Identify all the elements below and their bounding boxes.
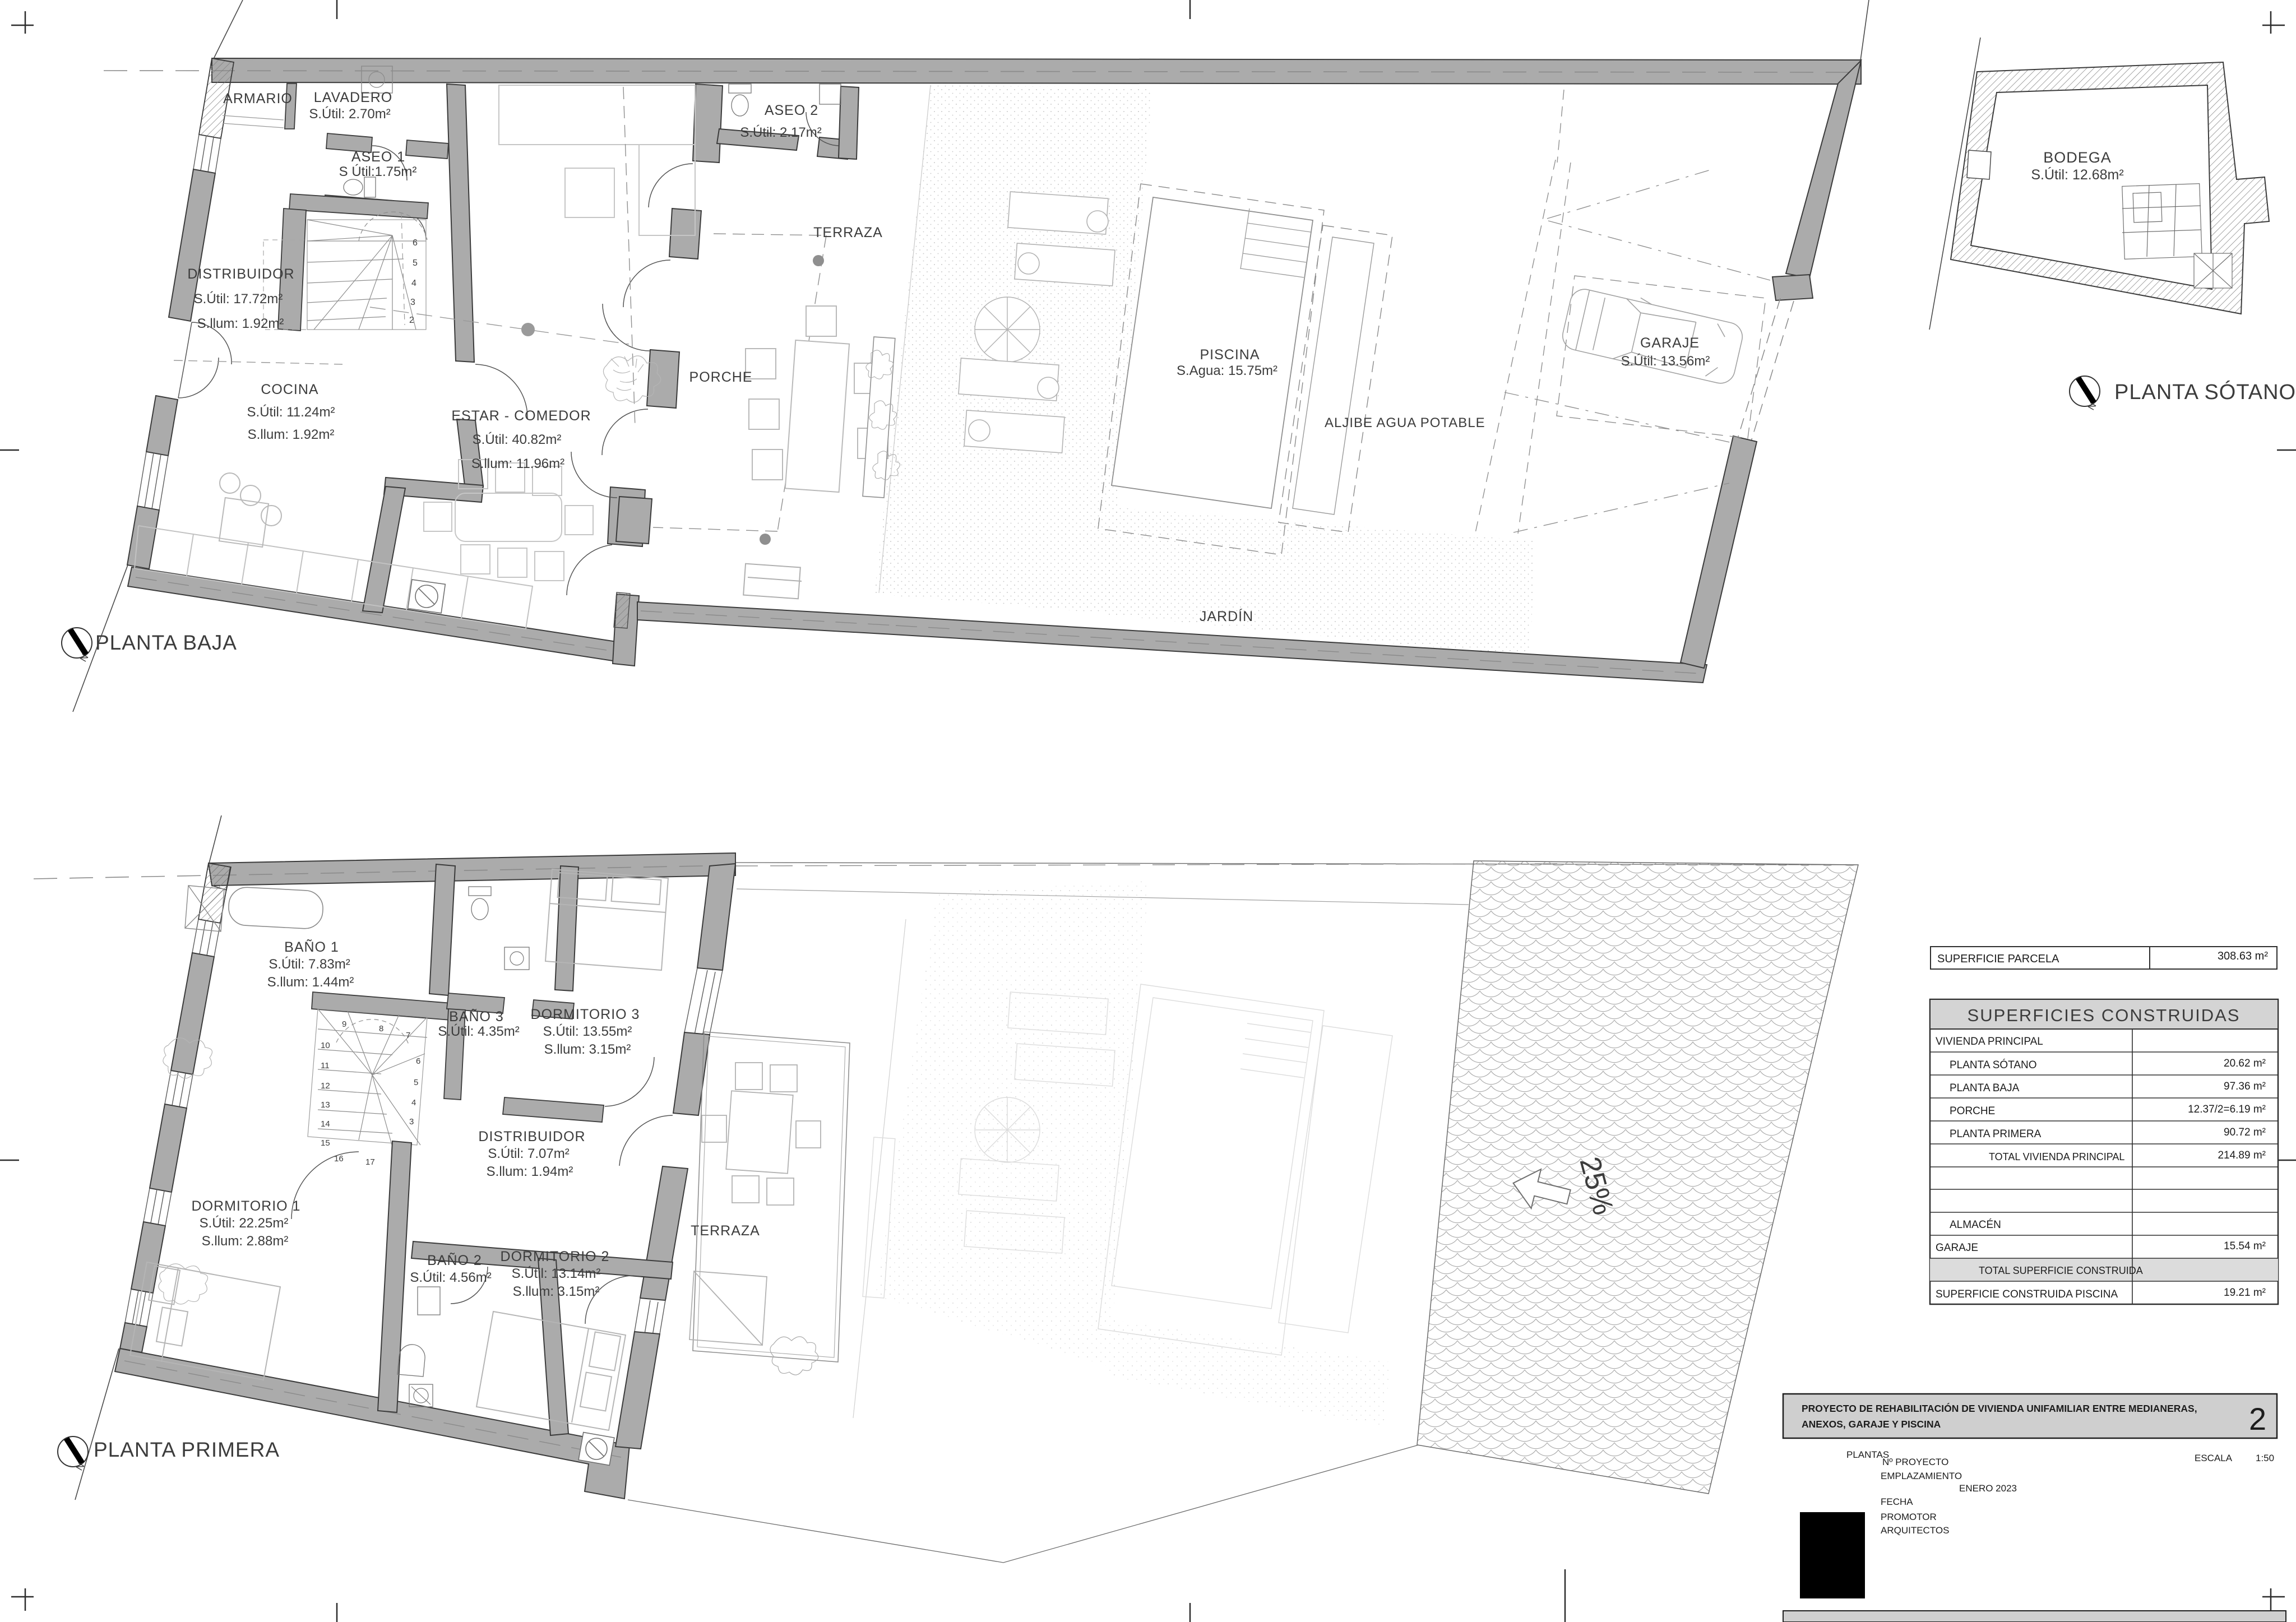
svg-text:2: 2	[2249, 1401, 2266, 1436]
svg-text:TERRAZA: TERRAZA	[691, 1223, 760, 1239]
svg-text:S.llum: 1.92m²: S.llum: 1.92m²	[197, 316, 284, 331]
svg-text:S.Útil: 13.55m²: S.Útil: 13.55m²	[543, 1024, 632, 1039]
svg-text:20.62 m²: 20.62 m²	[2224, 1058, 2266, 1069]
svg-text:15.54 m²: 15.54 m²	[2224, 1240, 2266, 1252]
svg-text:PISCINA: PISCINA	[1200, 347, 1260, 363]
svg-text:S.llum: 1.92m²: S.llum: 1.92m²	[248, 427, 335, 442]
svg-text:S.Útil: 2.17m²: S.Útil: 2.17m²	[740, 125, 821, 140]
svg-text:S.llum: 1.94m²: S.llum: 1.94m²	[487, 1164, 573, 1179]
svg-text:LAVADERO: LAVADERO	[314, 90, 392, 105]
svg-text:PLANTA BAJA: PLANTA BAJA	[1950, 1082, 2020, 1094]
svg-text:DORMITORIO 2: DORMITORIO 2	[501, 1249, 610, 1264]
svg-text:19.21 m²: 19.21 m²	[2224, 1287, 2266, 1299]
svg-text:DORMITORIO 1: DORMITORIO 1	[192, 1198, 301, 1214]
svg-text:S.llum: 3.15m²: S.llum: 3.15m²	[513, 1284, 600, 1299]
svg-text:FECHA: FECHA	[1881, 1496, 1913, 1507]
svg-text:PLANTA SÓTANO: PLANTA SÓTANO	[1950, 1059, 2037, 1071]
svg-text:3: 3	[410, 298, 415, 307]
svg-text:PLANTA PRIMERA: PLANTA PRIMERA	[94, 1438, 280, 1461]
svg-text:S.Útil: 22.25m²: S.Útil: 22.25m²	[200, 1216, 289, 1231]
svg-text:10: 10	[321, 1041, 330, 1050]
svg-text:S.Útil: 11.24m²: S.Útil: 11.24m²	[247, 405, 335, 420]
svg-text:PROYECTO DE REHABILITACIÓN DE: PROYECTO DE REHABILITACIÓN DE VIVIENDA U…	[1802, 1402, 2197, 1414]
svg-text:S.Útil: 17.72m²: S.Útil: 17.72m²	[194, 291, 283, 307]
svg-text:ASEO 1: ASEO 1	[351, 149, 405, 165]
svg-text:7: 7	[406, 1031, 410, 1040]
svg-text:15: 15	[321, 1138, 330, 1148]
svg-text:SUPERFICIE PARCELA: SUPERFICIE PARCELA	[1937, 953, 2059, 965]
svg-text:GARAJE: GARAJE	[1936, 1242, 1978, 1254]
svg-text:PROMOTOR: PROMOTOR	[1881, 1512, 1937, 1522]
svg-text:ARQUITECTOS: ARQUITECTOS	[1881, 1525, 1949, 1536]
svg-text:Nº PROYECTO: Nº PROYECTO	[1882, 1457, 1948, 1467]
svg-text:5: 5	[414, 1078, 418, 1087]
svg-text:S.llum: 2.88m²: S.llum: 2.88m²	[202, 1234, 289, 1249]
svg-text:S.Útil: 7.07m²: S.Útil: 7.07m²	[488, 1146, 569, 1161]
svg-text:DISTRIBUIDOR: DISTRIBUIDOR	[187, 266, 294, 282]
svg-text:ESTAR - COMEDOR: ESTAR - COMEDOR	[451, 408, 591, 424]
svg-text:S.Útil: 13.56m²: S.Útil: 13.56m²	[1621, 354, 1710, 369]
svg-text:12.37/2=6.19 m²: 12.37/2=6.19 m²	[2188, 1104, 2266, 1115]
svg-text:S Útil:1.75m²: S Útil:1.75m²	[339, 164, 417, 179]
svg-text:ESCALA: ESCALA	[2195, 1453, 2233, 1463]
svg-text:12: 12	[321, 1081, 330, 1091]
svg-text:BAÑO 3: BAÑO 3	[449, 1008, 504, 1025]
svg-text:EMPLAZAMIENTO: EMPLAZAMIENTO	[1881, 1471, 1962, 1481]
svg-text:5: 5	[413, 258, 418, 268]
svg-text:ANEXOS, GARAJE Y PISCINA: ANEXOS, GARAJE Y PISCINA	[1802, 1419, 1941, 1430]
svg-text:S.Útil: 2.70m²: S.Útil: 2.70m²	[309, 106, 390, 122]
svg-text:SUPERFICIES CONSTRUIDAS: SUPERFICIES CONSTRUIDAS	[1968, 1005, 2241, 1025]
svg-text:ALJIBE AGUA POTABLE: ALJIBE AGUA POTABLE	[1325, 415, 1485, 430]
svg-text:TERRAZA: TERRAZA	[813, 225, 883, 240]
svg-text:PLANTA SÓTANO: PLANTA SÓTANO	[2114, 380, 2296, 404]
svg-text:2: 2	[409, 316, 414, 325]
svg-text:4: 4	[411, 1098, 416, 1107]
svg-text:14: 14	[321, 1119, 330, 1129]
svg-text:TOTAL VIVIENDA PRINCIPAL: TOTAL VIVIENDA PRINCIPAL	[1989, 1151, 2124, 1162]
svg-text:3: 3	[409, 1117, 414, 1127]
svg-text:11: 11	[321, 1061, 330, 1070]
svg-text:DORMITORIO 3: DORMITORIO 3	[531, 1007, 640, 1022]
svg-text:PORCHE: PORCHE	[689, 369, 753, 385]
svg-text:16: 16	[334, 1154, 344, 1164]
svg-text:17: 17	[365, 1157, 375, 1167]
svg-text:S.Agua: 15.75m²: S.Agua: 15.75m²	[1177, 363, 1277, 378]
svg-text:S.Útil: 7.83m²: S.Útil: 7.83m²	[269, 957, 350, 972]
svg-text:BODEGA: BODEGA	[2043, 149, 2112, 166]
svg-text:VIVIENDA PRINCIPAL: VIVIENDA PRINCIPAL	[1936, 1036, 2043, 1048]
svg-text:ASEO 2: ASEO 2	[765, 103, 818, 118]
svg-text:ALMACÉN: ALMACÉN	[1950, 1219, 2001, 1231]
svg-text:90.72 m²: 90.72 m²	[2224, 1127, 2266, 1138]
svg-text:S.llum: 3.15m²: S.llum: 3.15m²	[544, 1042, 631, 1057]
svg-text:ARMARIO: ARMARIO	[223, 91, 293, 106]
svg-text:4: 4	[411, 279, 416, 288]
svg-text:PORCHE: PORCHE	[1950, 1105, 1995, 1117]
svg-text:214.89 m²: 214.89 m²	[2218, 1150, 2266, 1161]
svg-text:S.Útil: 4.35m²: S.Útil: 4.35m²	[438, 1024, 519, 1039]
svg-text:GARAJE: GARAJE	[1640, 335, 1700, 351]
svg-text:6: 6	[416, 1056, 420, 1066]
svg-text:ENERO 2023: ENERO 2023	[1959, 1483, 2017, 1494]
svg-text:S.Útil: 4.56m²: S.Útil: 4.56m²	[410, 1270, 491, 1285]
svg-text:S.Útil: 40.82m²: S.Útil: 40.82m²	[473, 432, 562, 447]
svg-text:TOTAL SUPERFICIE CONSTRUIDA: TOTAL SUPERFICIE CONSTRUIDA	[1979, 1265, 2143, 1276]
svg-text:SUPERFICIE CONSTRUIDA PISCINA: SUPERFICIE CONSTRUIDA PISCINA	[1936, 1289, 2118, 1300]
svg-text:9: 9	[342, 1019, 346, 1029]
svg-text:BAÑO 1: BAÑO 1	[284, 939, 339, 955]
svg-text:S.llum: 11.96m²: S.llum: 11.96m²	[471, 456, 564, 471]
svg-text:DISTRIBUIDOR: DISTRIBUIDOR	[478, 1129, 585, 1144]
svg-text:S.Útil: 12.68m²: S.Útil: 12.68m²	[2031, 166, 2123, 183]
svg-text:1:50: 1:50	[2256, 1453, 2274, 1463]
svg-text:JARDÍN: JARDÍN	[1200, 608, 1253, 624]
svg-text:308.63 m²: 308.63 m²	[2218, 950, 2268, 962]
svg-text:BAÑO 2: BAÑO 2	[427, 1252, 482, 1268]
svg-text:S.llum: 1.44m²: S.llum: 1.44m²	[267, 975, 354, 990]
svg-text:S.Útil: 13.14m²: S.Útil: 13.14m²	[512, 1266, 601, 1281]
svg-text:8: 8	[379, 1024, 383, 1034]
svg-text:13: 13	[321, 1100, 330, 1110]
svg-text:COCINA: COCINA	[261, 382, 318, 397]
svg-text:PLANTA PRIMERA: PLANTA PRIMERA	[1950, 1128, 2042, 1140]
svg-text:6: 6	[413, 238, 418, 248]
svg-text:PLANTA BAJA: PLANTA BAJA	[95, 631, 237, 654]
svg-text:97.36 m²: 97.36 m²	[2224, 1081, 2266, 1092]
